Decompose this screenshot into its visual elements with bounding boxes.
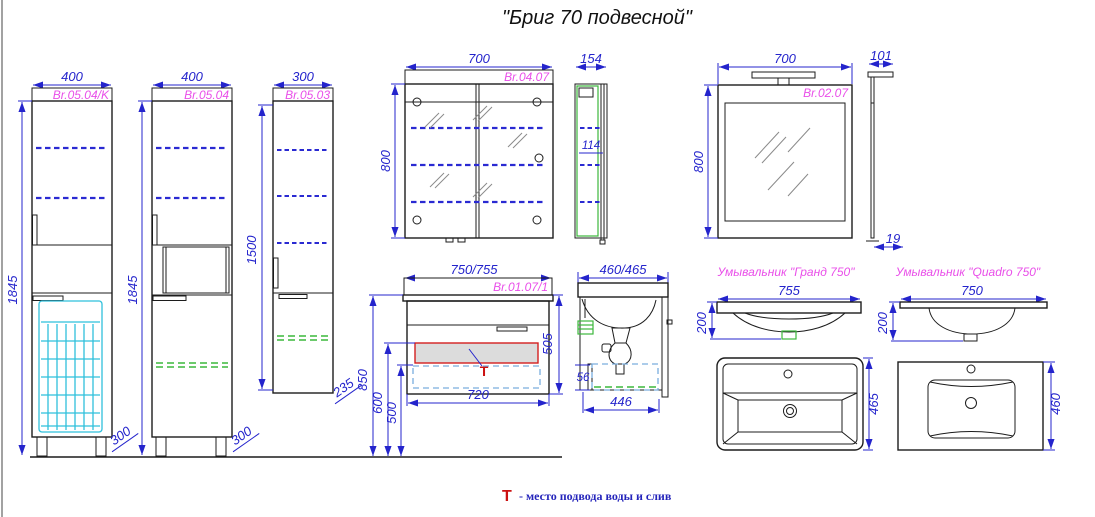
sink-quadro-height-dim: 200: [875, 311, 890, 334]
legend-text: - место подвода воды и слив: [519, 489, 672, 503]
vanity-body-width-dim: 720: [467, 387, 489, 402]
water-supply-zone: [415, 343, 538, 363]
sink-grand-top-view: 465: [717, 358, 881, 450]
cabinet-k-depth-dim: 300: [107, 423, 134, 448]
sink-quadro-depth-dim: 460: [1048, 392, 1063, 414]
vanity-inlet-height-dim: 600: [370, 391, 385, 413]
mirror-height-dim: 800: [691, 150, 706, 172]
sink-quadro-top-view: 460: [898, 362, 1063, 450]
sink-grand-width-dim: 755: [778, 283, 800, 298]
mirror-drawing: 700 Br.02.07 800: [691, 51, 852, 238]
vanity-side-view: 460/465 56 446: [575, 262, 672, 413]
cabinet-k-code-label: Br.05.04/K: [53, 88, 110, 102]
cabinet-width-dim: 400: [181, 69, 203, 84]
vanity-depth-dim: 460/465: [600, 262, 648, 277]
mirror-width-dim: 700: [774, 51, 796, 66]
vanity-drawer-side-dim: 56: [577, 372, 590, 384]
vanity-body-depth-dim: 446: [610, 394, 632, 409]
technical-drawing-page: "Бриг 70 подвесной" 400 Br.05.04/K 1845 …: [0, 0, 1095, 517]
half-cabinet-code-label: Br.05.03: [285, 88, 330, 102]
mirror-lamp: [752, 72, 815, 78]
cabinet-height-dim: 1845: [125, 275, 140, 305]
faucet-hole: [784, 370, 792, 378]
sink-grand-depth-dim: 465: [866, 392, 881, 414]
siphon: [602, 328, 631, 374]
drawing-canvas: "Бриг 70 подвесной" 400 Br.05.04/K 1845 …: [0, 0, 1095, 517]
sink-quadro-drain: [964, 334, 977, 341]
faucet-hole: [967, 365, 975, 373]
vanity-code-label: Br.01.07/1: [493, 280, 548, 294]
drain-hole: [784, 405, 797, 418]
vanity-height-dim: 505: [540, 332, 555, 354]
sink-quadro-width-dim: 750: [961, 283, 983, 298]
vanity-drawer-dashed: [413, 366, 540, 388]
mirror-cabinet-depth-dim: 154: [580, 51, 602, 66]
half-cabinet-height-dim: 1500: [244, 235, 259, 265]
mirror-cabinet-height-dim: 800: [378, 149, 393, 171]
vanity-drain-height-dim: 500: [384, 401, 399, 423]
vanity-mount-height-dim: 850: [355, 368, 370, 390]
sink-grand-name: Умывальник "Гранд 750": [717, 265, 856, 279]
vanity-drawing: 750/755 Br.01.07/1 Т 720 505 850 600 500: [355, 262, 563, 456]
sink-grand-height-dim: 200: [694, 311, 709, 334]
cabinet-code-label: Br.05.04: [184, 88, 229, 102]
mirror-cabinet-drawing: 700 Br.04.07 800: [378, 51, 553, 242]
mirror-hatch-marks: [755, 128, 810, 196]
vanity-width-dim: 750/755: [451, 262, 499, 277]
legend-note: Т - место подвода воды и слив: [502, 488, 672, 505]
sink-grand-front-view: Умывальник "Гранд 750" 755 200: [694, 265, 861, 339]
tall-cabinet-drawing: 400 Br.05.04 1845 300: [125, 69, 259, 456]
mirror-cabinet-code-label: Br.04.07: [504, 70, 550, 84]
sink-quadro-name: Умывальник "Quadro 750": [895, 265, 1041, 279]
half-cabinet-drawing: 300 Br.05.03 1500 235: [244, 69, 361, 404]
drain-hole: [966, 398, 977, 409]
mirror-cabinet-side-view: 154 114: [575, 51, 607, 244]
mirror-thickness-dim: 19: [886, 231, 900, 246]
mirror-cabinet-width-dim: 700: [468, 51, 490, 66]
tall-cabinet-k-drawing: 400 Br.05.04/K 1845 300: [5, 69, 138, 456]
cabinet-k-height-dim: 1845: [5, 275, 20, 305]
cabinet-k-width-dim: 400: [61, 69, 83, 84]
mirror-side-view: 101 19: [866, 48, 903, 247]
half-cabinet-width-dim: 300: [292, 69, 314, 84]
legend-symbol: Т: [502, 488, 512, 505]
page-title: "Бриг 70 подвесной": [502, 7, 693, 29]
sink-quadro-front-view: Умывальник "Quadro 750" 750 200: [875, 265, 1047, 341]
mirror-lamp-depth-dim: 101: [870, 48, 892, 63]
mirror-cabinet-inner-width-dim: 114: [582, 140, 600, 152]
mirror-code-label: Br.02.07: [803, 86, 849, 100]
